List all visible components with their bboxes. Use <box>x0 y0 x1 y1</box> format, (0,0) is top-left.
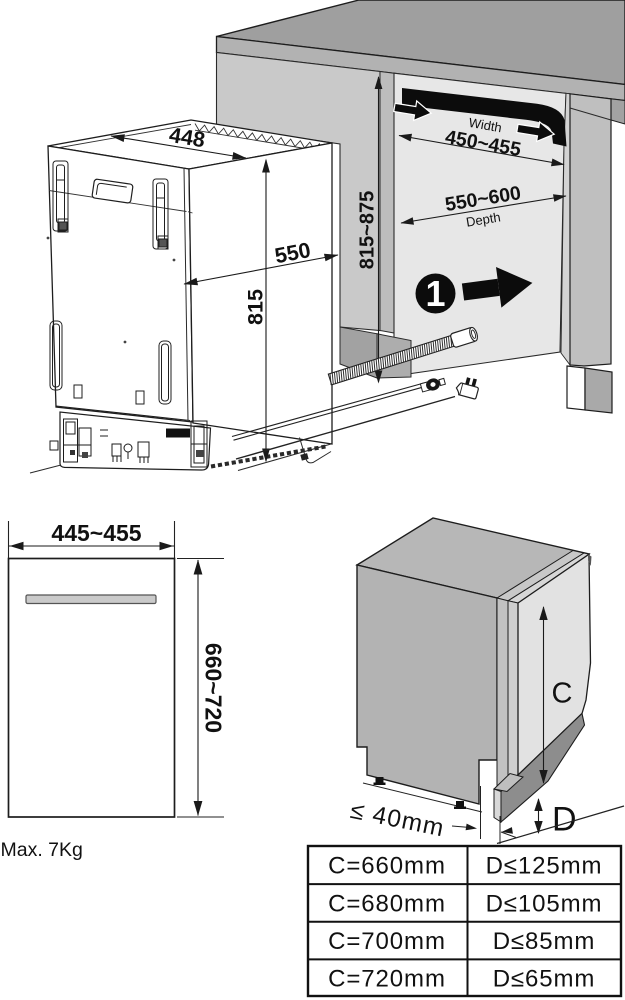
svg-text:445~455: 445~455 <box>51 520 141 546</box>
svg-text:D≤85mm: D≤85mm <box>493 928 596 955</box>
svg-text:D≤125mm: D≤125mm <box>486 853 603 880</box>
svg-text:≤ 40mm: ≤ 40mm <box>348 797 447 843</box>
svg-text:C=660mm: C=660mm <box>328 853 446 880</box>
svg-text:C: C <box>552 678 573 710</box>
svg-text:D≤105mm: D≤105mm <box>486 891 603 918</box>
svg-text:C=720mm: C=720mm <box>328 965 446 992</box>
svg-text:C=680mm: C=680mm <box>328 891 446 918</box>
svg-text:1: 1 <box>425 273 445 314</box>
svg-text:D: D <box>552 801 577 839</box>
svg-text:D≤65mm: D≤65mm <box>493 965 596 992</box>
svg-text:815: 815 <box>244 289 268 325</box>
svg-text:815~875: 815~875 <box>357 191 379 269</box>
svg-text:C=700mm: C=700mm <box>328 928 446 955</box>
svg-text:660~720: 660~720 <box>201 643 227 733</box>
svg-text:Max. 7Kg: Max. 7Kg <box>1 839 83 861</box>
